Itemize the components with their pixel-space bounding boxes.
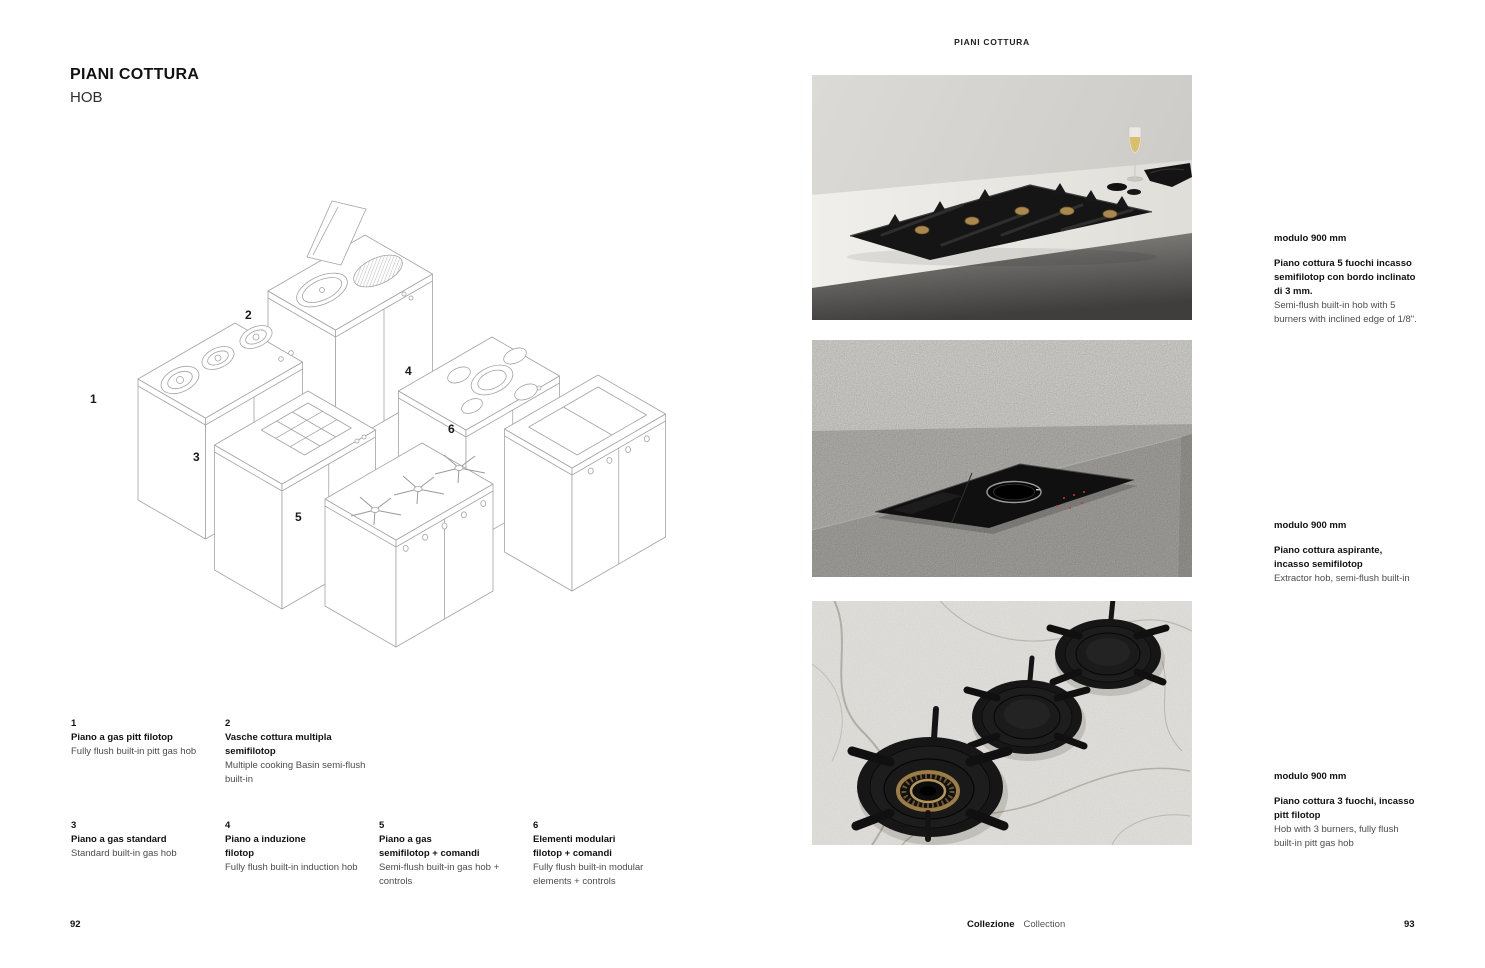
legend-item-3: 3 Piano a gas standard Standard built-in… — [71, 819, 231, 861]
hob-modules-isometric-diagram: 1 2 3 4 5 6 — [60, 195, 680, 655]
legend-title-it: Piano a gas standard — [71, 833, 231, 847]
product-title-it: Piano cottura 3 fuochi, incasso pitt fil… — [1274, 795, 1444, 823]
page-number-left: 92 — [70, 919, 81, 930]
module-size: modulo 900 mm — [1274, 519, 1444, 533]
photo-extractor-hob — [812, 340, 1192, 577]
legend-item-1: 1 Piano a gas pitt filotop Fully flush b… — [71, 717, 231, 759]
legend-title-it: Piano a gas semifilotop + comandi — [379, 833, 539, 861]
product-spec-2: modulo 900 mm Piano cottura aspirante, i… — [1274, 519, 1444, 586]
catalog-spread: PIANI COTTURA HOB — [0, 0, 1485, 968]
legend-title-it: Piano a gas pitt filotop — [71, 731, 231, 745]
product-spec-1: modulo 900 mm Piano cottura 5 fuochi inc… — [1274, 232, 1444, 327]
legend-item-4: 4 Piano a induzione filotop Fully flush … — [225, 819, 385, 875]
legend-desc-en: Fully flush built-in induction hob — [225, 861, 385, 875]
product-title-it: Piano cottura 5 fuochi incasso semifilot… — [1274, 257, 1444, 299]
legend-title-it: Elementi modulari filotop + comandi — [533, 833, 693, 861]
photo-gas-hob-5-burners — [812, 75, 1192, 320]
footer-brand-it: Collezione — [967, 919, 1015, 930]
diagram-label-4: 4 — [405, 364, 412, 378]
legend-item-2: 2 Vasche cottura multipla semifilotop Mu… — [225, 717, 385, 787]
product-spec-3: modulo 900 mm Piano cottura 3 fuochi, in… — [1274, 770, 1444, 851]
legend-number: 6 — [533, 819, 693, 833]
product-title-it: Piano cottura aspirante, incasso semifil… — [1274, 544, 1444, 572]
diagram-label-5: 5 — [295, 510, 302, 524]
footer-brand: CollezioneCollection — [967, 919, 1065, 930]
product-desc-en: Extractor hob, semi-flush built-in — [1274, 572, 1444, 586]
legend-item-6: 6 Elementi modulari filotop + comandi Fu… — [533, 819, 693, 889]
page-number-right: 93 — [1404, 919, 1415, 930]
legend-number: 5 — [379, 819, 539, 833]
module-size: modulo 900 mm — [1274, 232, 1444, 246]
product-desc-en: Hob with 3 burners, fully flush built-in… — [1274, 823, 1444, 851]
legend-desc-en: Fully flush built-in modular elements + … — [533, 861, 693, 889]
legend-desc-en: Standard built-in gas hob — [71, 847, 231, 861]
legend-title-it: Piano a induzione filotop — [225, 833, 385, 861]
diagram-label-1: 1 — [90, 392, 97, 406]
legend-desc-en: Semi-flush built-in gas hob + controls — [379, 861, 539, 889]
running-header: PIANI COTTURA — [812, 37, 1172, 47]
legend-item-5: 5 Piano a gas semifilotop + comandi Semi… — [379, 819, 539, 889]
legend-desc-en: Multiple cooking Basin semi-flush built-… — [225, 759, 385, 787]
diagram-label-2: 2 — [245, 308, 252, 322]
page-title-block: PIANI COTTURA HOB — [70, 66, 199, 106]
legend-number: 1 — [71, 717, 231, 731]
product-desc-en: Semi-flush built-in hob with 5 burners w… — [1274, 299, 1444, 327]
footer-brand-en: Collection — [1024, 919, 1066, 930]
photo-three-burners-marble — [812, 601, 1192, 845]
legend-desc-en: Fully flush built-in pitt gas hob — [71, 745, 231, 759]
legend-number: 2 — [225, 717, 385, 731]
legend-number: 3 — [71, 819, 231, 833]
legend-title-it: Vasche cottura multipla semifilotop — [225, 731, 385, 759]
diagram-label-6: 6 — [448, 422, 455, 436]
module-size: modulo 900 mm — [1274, 770, 1444, 784]
page-title: PIANI COTTURA — [70, 66, 199, 84]
legend-number: 4 — [225, 819, 385, 833]
page-subtitle: HOB — [70, 89, 199, 106]
diagram-label-3: 3 — [193, 450, 200, 464]
